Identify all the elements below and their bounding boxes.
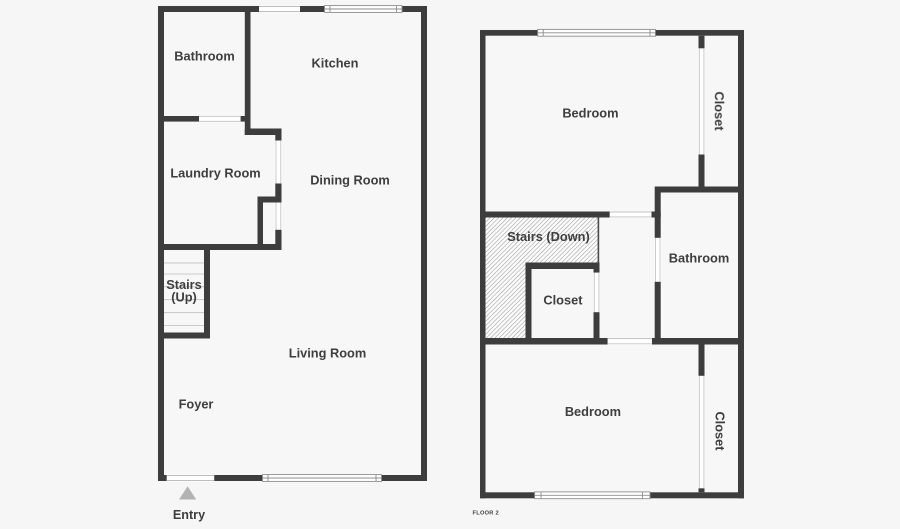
svg-text:(Up): (Up) [171,290,197,305]
svg-text:Bedroom: Bedroom [565,404,621,419]
svg-text:Closet: Closet [543,293,583,308]
svg-text:Bathroom: Bathroom [669,250,729,265]
svg-text:Stairs (Down): Stairs (Down) [507,229,589,244]
svg-text:Laundry Room: Laundry Room [170,166,260,181]
svg-text:Entry: Entry [173,508,205,522]
svg-text:Bathroom: Bathroom [174,49,234,64]
svg-text:Foyer: Foyer [179,397,214,412]
svg-text:Dining Room: Dining Room [310,173,390,188]
svg-text:Living Room: Living Room [289,345,367,360]
svg-text:Closet: Closet [712,91,727,131]
svg-text:Bedroom: Bedroom [562,106,618,121]
svg-text:Closet: Closet [713,411,728,451]
svg-text:Kitchen: Kitchen [312,56,359,71]
svg-text:FLOOR 2: FLOOR 2 [473,511,499,517]
